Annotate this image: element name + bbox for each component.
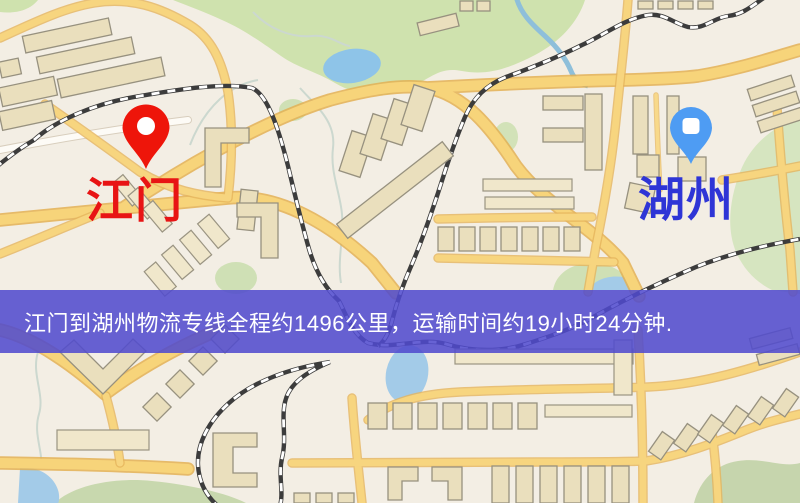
origin-city-label: 江门: [86, 177, 184, 224]
destination-pin-hole: [683, 118, 700, 134]
destination-city-label: 湖州: [638, 176, 734, 223]
origin-pin-hole: [137, 117, 155, 135]
route-info-banner: 江门到湖州物流专线全程约1496公里，运输时间约19小时24分钟.: [0, 290, 800, 353]
route-map-graphic: 江门 湖州 江门到湖州物流专线全程约1496公里，运输时间约19小时24分钟.: [0, 0, 800, 503]
route-info-text: 江门到湖州物流专线全程约1496公里，运输时间约19小时24分钟.: [0, 306, 673, 338]
map-canvas: [0, 0, 800, 503]
